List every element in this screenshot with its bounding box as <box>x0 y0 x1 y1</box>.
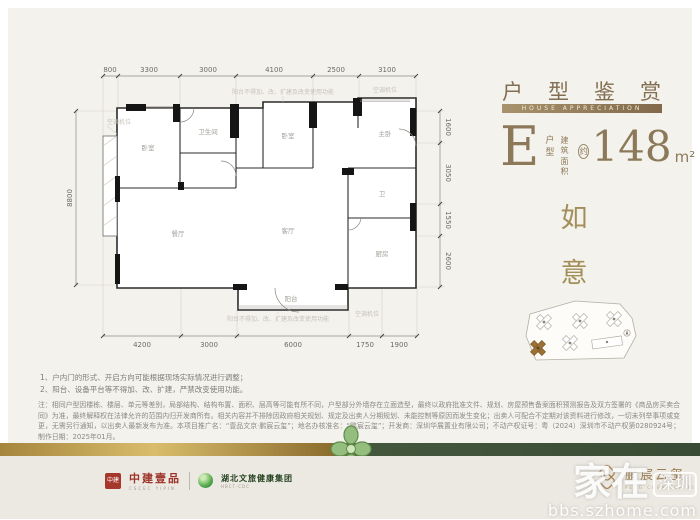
subtitle-en: HOUSE APPRECIATION <box>522 106 643 112</box>
area-word: 建筑 面积 <box>560 136 572 178</box>
developer-logos: 中建 中建壹品 CSCEC YIPIN 湖北文旅健康集团 HBCT·CDC <box>105 470 293 491</box>
plan-walls <box>103 98 416 312</box>
svg-text:卫: 卫 <box>379 190 386 198</box>
svg-text:3100: 3100 <box>378 66 396 74</box>
svg-text:800: 800 <box>103 66 116 74</box>
logo-divider <box>189 472 190 490</box>
area-unit: m² <box>675 148 696 166</box>
svg-text:客厅: 客厅 <box>282 226 296 235</box>
logo2-name: 湖北文旅健康集团 <box>221 473 293 484</box>
poster-card: 800 3300 3000 4100 2500 3100 4200 3000 6… <box>8 8 692 443</box>
svg-text:2500: 2500 <box>327 66 345 74</box>
svg-text:3300: 3300 <box>140 66 158 74</box>
note-line-1: 1、户内门的形式、开启方向可能根据现场实际情况进行调整； <box>40 372 247 384</box>
svg-text:1750: 1750 <box>356 341 374 349</box>
svg-text:6000: 6000 <box>284 341 302 349</box>
svg-text:阳台不得加、改、扩建及改变使用功能: 阳台不得加、改、扩建及改变使用功能 <box>232 88 334 96</box>
hbct-globe-icon <box>198 473 213 488</box>
page-title: 户型鉴赏 <box>502 76 692 106</box>
siteplan-map <box>520 296 685 364</box>
svg-text:餐厅: 餐厅 <box>172 229 186 238</box>
svg-text:阳台: 阳台 <box>285 294 298 303</box>
svg-text:4200: 4200 <box>133 341 151 349</box>
notes-list: 1、户内门的形式、开启方向可能根据现场实际情况进行调整； 2、阳台、设备平台等不… <box>40 372 247 397</box>
svg-text:1600: 1600 <box>444 118 452 136</box>
svg-text:3050: 3050 <box>444 164 452 182</box>
cscec-seal-icon: 中建 <box>105 473 121 489</box>
svg-text:4100: 4100 <box>265 66 283 74</box>
logo2-sub: HBCT·CDC <box>221 484 293 489</box>
unit-area-row: E 户 型 建筑 面积 约 148 m² <box>500 120 695 178</box>
approx-circle: 约 <box>578 144 589 159</box>
svg-text:8800: 8800 <box>66 189 74 207</box>
watermark-city-badge: 深圳 <box>653 472 697 497</box>
svg-text:厨房: 厨房 <box>376 249 389 258</box>
svg-text:1550: 1550 <box>444 211 452 229</box>
svg-text:3000: 3000 <box>199 66 217 74</box>
watermark-main: 家在 <box>573 463 649 501</box>
unit-word: 户 型 <box>545 136 554 159</box>
svg-text:卧室: 卧室 <box>142 143 156 152</box>
svg-text:2600: 2600 <box>444 252 452 270</box>
watermark-url: bbs.szhome.com <box>548 503 697 519</box>
logo1-sub: CSCEC YIPIN <box>129 486 181 491</box>
area-value: 148 <box>591 126 671 168</box>
slogan-char-1: 如 <box>556 196 592 235</box>
logo1-name: 中建壹品 <box>129 470 181 486</box>
svg-text:3000: 3000 <box>200 341 218 349</box>
unit-letter: E <box>500 120 539 174</box>
slogan: 如 意 <box>556 196 592 306</box>
svg-text:主卧: 主卧 <box>379 129 393 138</box>
svg-text:卫生间: 卫生间 <box>198 127 218 136</box>
svg-text:空调机位: 空调机位 <box>355 310 379 318</box>
title-subtitle-bar: HOUSE APPRECIATION <box>502 104 662 113</box>
note-line-2: 2、阳台、设备平台等不得加、改、扩建，严禁改变使用功能。 <box>40 384 247 396</box>
svg-text:阳台不得加、改、扩建及改变使用功能: 阳台不得加、改、扩建及改变使用功能 <box>227 315 329 323</box>
svg-text:空调机位: 空调机位 <box>107 118 131 126</box>
svg-text:空调机位: 空调机位 <box>373 86 397 94</box>
watermark: 家在 深圳 bbs.szhome.com <box>548 463 697 519</box>
floorplan-drawing: 800 3300 3000 4100 2500 3100 4200 3000 6… <box>33 58 478 368</box>
slogan-char-2: 意 <box>556 251 592 290</box>
svg-text:1900: 1900 <box>390 341 408 349</box>
svg-text:卧室: 卧室 <box>282 131 296 140</box>
